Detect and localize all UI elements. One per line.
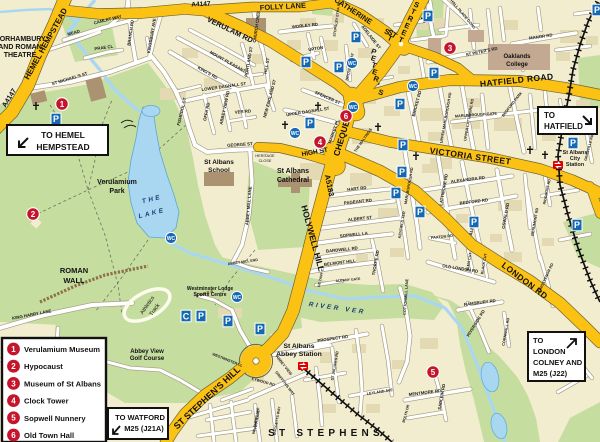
- svg-text:Park: Park: [109, 188, 124, 195]
- svg-text:GORHAMBURY: GORHAMBURY: [0, 36, 46, 43]
- svg-text:P: P: [393, 188, 399, 198]
- svg-text:HATFIELD: HATFIELD: [544, 122, 583, 131]
- svg-text:Cathedral: Cathedral: [277, 177, 309, 184]
- svg-text:P: P: [417, 207, 423, 217]
- svg-text:TO: TO: [533, 336, 543, 345]
- svg-text:3: 3: [11, 379, 16, 388]
- svg-text:WC: WC: [233, 295, 242, 301]
- svg-text:P: P: [225, 316, 231, 326]
- svg-text:P: P: [431, 68, 437, 78]
- svg-text:Sports Centre: Sports Centre: [193, 292, 226, 298]
- svg-text:6: 6: [344, 112, 349, 121]
- svg-text:Verulamium: Verulamium: [97, 179, 137, 186]
- svg-text:P: P: [307, 118, 313, 128]
- svg-text:P: P: [53, 114, 59, 124]
- svg-text:Sopwell Nunnery: Sopwell Nunnery: [24, 414, 86, 423]
- svg-text:THEATRE: THEATRE: [4, 52, 37, 59]
- svg-text:P: P: [198, 311, 204, 321]
- svg-text:St Albans: St Albans: [277, 168, 309, 175]
- svg-text:CLOSE: CLOSE: [259, 159, 272, 163]
- svg-text:P: P: [399, 167, 405, 177]
- svg-text:M25 (J22): M25 (J22): [533, 369, 568, 378]
- svg-text:ROMAN: ROMAN: [60, 266, 88, 275]
- svg-text:P: P: [594, 5, 600, 15]
- svg-text:6: 6: [11, 431, 16, 440]
- svg-text:Oaklands: Oaklands: [503, 54, 531, 60]
- svg-text:P: P: [257, 324, 263, 334]
- svg-text:Verulamium Museum: Verulamium Museum: [24, 345, 100, 354]
- svg-text:TO WATFORD: TO WATFORD: [115, 413, 165, 422]
- svg-text:P: P: [574, 220, 580, 230]
- svg-text:St Albans: St Albans: [204, 159, 234, 166]
- svg-text:WC: WC: [348, 61, 357, 67]
- svg-text:P: P: [353, 32, 359, 42]
- svg-text:1: 1: [60, 100, 65, 109]
- svg-text:4: 4: [11, 397, 16, 406]
- svg-text:A4147: A4147: [191, 0, 211, 8]
- svg-text:C: C: [183, 311, 190, 321]
- svg-text:School: School: [208, 167, 230, 174]
- svg-text:Golf Course: Golf Course: [130, 356, 165, 362]
- svg-text:Old Town Hall: Old Town Hall: [24, 431, 74, 440]
- svg-text:St Albans: St Albans: [283, 343, 314, 350]
- svg-text:1: 1: [11, 345, 16, 354]
- svg-text:3: 3: [448, 44, 453, 53]
- svg-text:P: P: [303, 57, 309, 67]
- svg-text:ST STEPHENS: ST STEPHENS: [268, 428, 384, 439]
- svg-text:P: P: [425, 11, 431, 21]
- svg-text:Abbey Station: Abbey Station: [276, 351, 322, 358]
- svg-text:2: 2: [31, 210, 36, 219]
- svg-text:College: College: [506, 62, 528, 68]
- svg-text:WC: WC: [291, 131, 300, 137]
- svg-text:4: 4: [318, 138, 323, 147]
- svg-text:TO: TO: [544, 111, 555, 120]
- svg-text:P: P: [336, 62, 342, 72]
- svg-text:P: P: [400, 140, 406, 150]
- svg-text:5: 5: [431, 368, 436, 377]
- svg-text:2: 2: [11, 362, 16, 371]
- svg-text:WC: WC: [167, 236, 176, 242]
- svg-text:Station: Station: [566, 162, 584, 168]
- svg-text:COLNEY AND: COLNEY AND: [533, 358, 583, 367]
- svg-text:HEMPSTEAD: HEMPSTEAD: [36, 142, 89, 152]
- svg-text:LONDON: LONDON: [533, 347, 566, 356]
- svg-text:HERITAGE: HERITAGE: [255, 154, 275, 158]
- svg-text:AND ROMAN: AND ROMAN: [0, 44, 42, 51]
- svg-text:Abbey View: Abbey View: [130, 349, 164, 355]
- svg-text:P: P: [471, 217, 477, 227]
- svg-text:Museum of St Albans: Museum of St Albans: [24, 379, 101, 388]
- svg-text:P: P: [570, 138, 576, 148]
- svg-text:Hypocaust: Hypocaust: [24, 362, 63, 371]
- svg-text:WC: WC: [409, 84, 418, 90]
- svg-text:P: P: [397, 99, 403, 109]
- svg-text:5: 5: [11, 414, 16, 423]
- svg-text:WC: WC: [349, 105, 358, 111]
- svg-text:Clock Tower: Clock Tower: [24, 397, 69, 406]
- svg-text:M25 (J21A): M25 (J21A): [124, 424, 164, 433]
- svg-text:WALL: WALL: [63, 276, 85, 285]
- svg-text:TO HEMEL: TO HEMEL: [41, 130, 85, 140]
